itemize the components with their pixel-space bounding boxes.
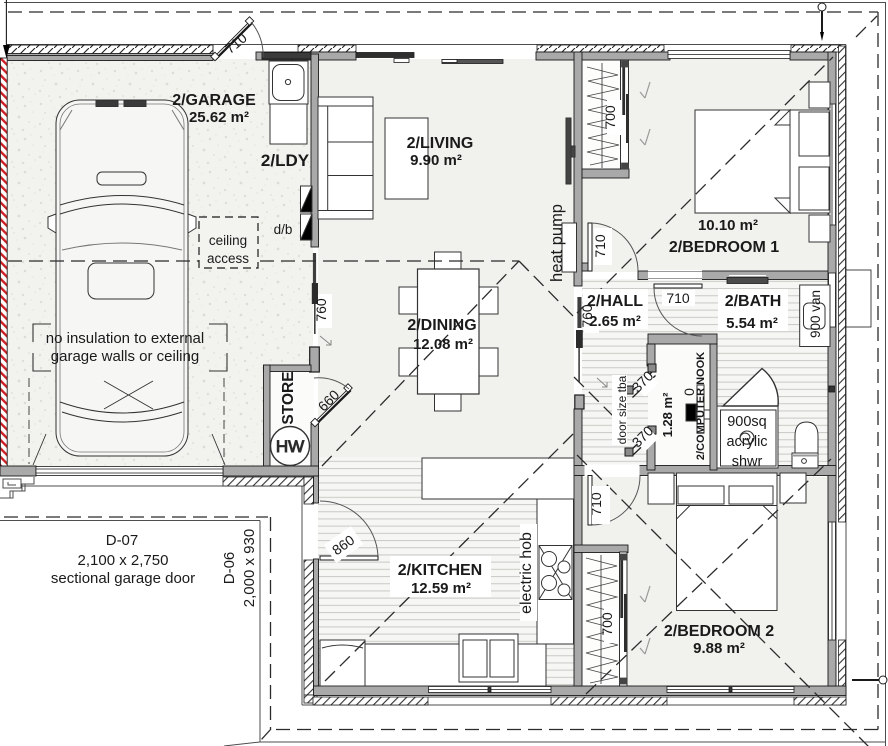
- svg-text:2/DINING: 2/DINING: [407, 317, 476, 334]
- svg-text:900sq: 900sq: [727, 414, 767, 430]
- svg-text:no insulation to external: no insulation to external: [46, 330, 204, 347]
- svg-text:electric hob: electric hob: [518, 532, 535, 614]
- svg-text:garage walls or ceiling: garage walls or ceiling: [51, 348, 199, 365]
- svg-text:5.54 m²: 5.54 m²: [726, 315, 778, 332]
- svg-text:ceiling: ceiling: [209, 233, 247, 248]
- svg-text:acrylic: acrylic: [726, 434, 767, 450]
- svg-text:2/COMPUTER NOOK: 2/COMPUTER NOOK: [695, 352, 707, 460]
- svg-text:2/BEDROOM 1: 2/BEDROOM 1: [669, 239, 779, 256]
- svg-text:760: 760: [579, 304, 595, 328]
- svg-text:0: 0: [681, 388, 697, 396]
- svg-text:2/GARAGE: 2/GARAGE: [172, 92, 256, 109]
- svg-text:700: 700: [599, 612, 615, 636]
- svg-text:710: 710: [588, 492, 604, 516]
- svg-text:9.90 m²: 9.90 m²: [410, 152, 462, 169]
- svg-text:heat pump: heat pump: [548, 204, 566, 282]
- svg-text:700: 700: [602, 105, 618, 129]
- svg-text:d/b: d/b: [274, 222, 293, 237]
- svg-text:900 van: 900 van: [808, 290, 823, 338]
- svg-text:HW: HW: [276, 437, 304, 456]
- svg-text:2/BEDROOM 2: 2/BEDROOM 2: [664, 623, 774, 640]
- svg-text:2/LDY: 2/LDY: [261, 151, 310, 170]
- svg-text:2,100 x 2,750: 2,100 x 2,750: [78, 552, 169, 569]
- svg-text:1.28 m²: 1.28 m²: [660, 392, 675, 437]
- svg-text:760: 760: [313, 298, 329, 322]
- svg-text:sectional garage door: sectional garage door: [51, 570, 195, 587]
- svg-text:STORE: STORE: [280, 371, 297, 424]
- svg-text:D-06: D-06: [221, 552, 238, 585]
- svg-text:2/BATH: 2/BATH: [725, 293, 782, 310]
- svg-text:2/LIVING: 2/LIVING: [407, 135, 474, 152]
- svg-text:D-07: D-07: [106, 532, 139, 549]
- svg-text:9.88 m²: 9.88 m²: [693, 640, 745, 657]
- svg-text:12.08 m²: 12.08 m²: [413, 336, 473, 353]
- svg-text:2/KITCHEN: 2/KITCHEN: [398, 562, 482, 579]
- svg-text:2,000 x 930: 2,000 x 930: [241, 529, 258, 607]
- svg-text:shwr: shwr: [732, 454, 763, 470]
- svg-text:2/HALL: 2/HALL: [587, 293, 643, 310]
- svg-text:710: 710: [666, 290, 690, 306]
- svg-text:12.59 m²: 12.59 m²: [411, 580, 471, 597]
- svg-text:710: 710: [592, 234, 608, 258]
- svg-text:25.62 m²: 25.62 m²: [189, 109, 249, 126]
- svg-text:2.65 m²: 2.65 m²: [589, 313, 641, 330]
- svg-text:door size tba: door size tba: [615, 375, 629, 444]
- svg-text:access: access: [207, 251, 249, 266]
- svg-text:10.10 m²: 10.10 m²: [698, 217, 758, 234]
